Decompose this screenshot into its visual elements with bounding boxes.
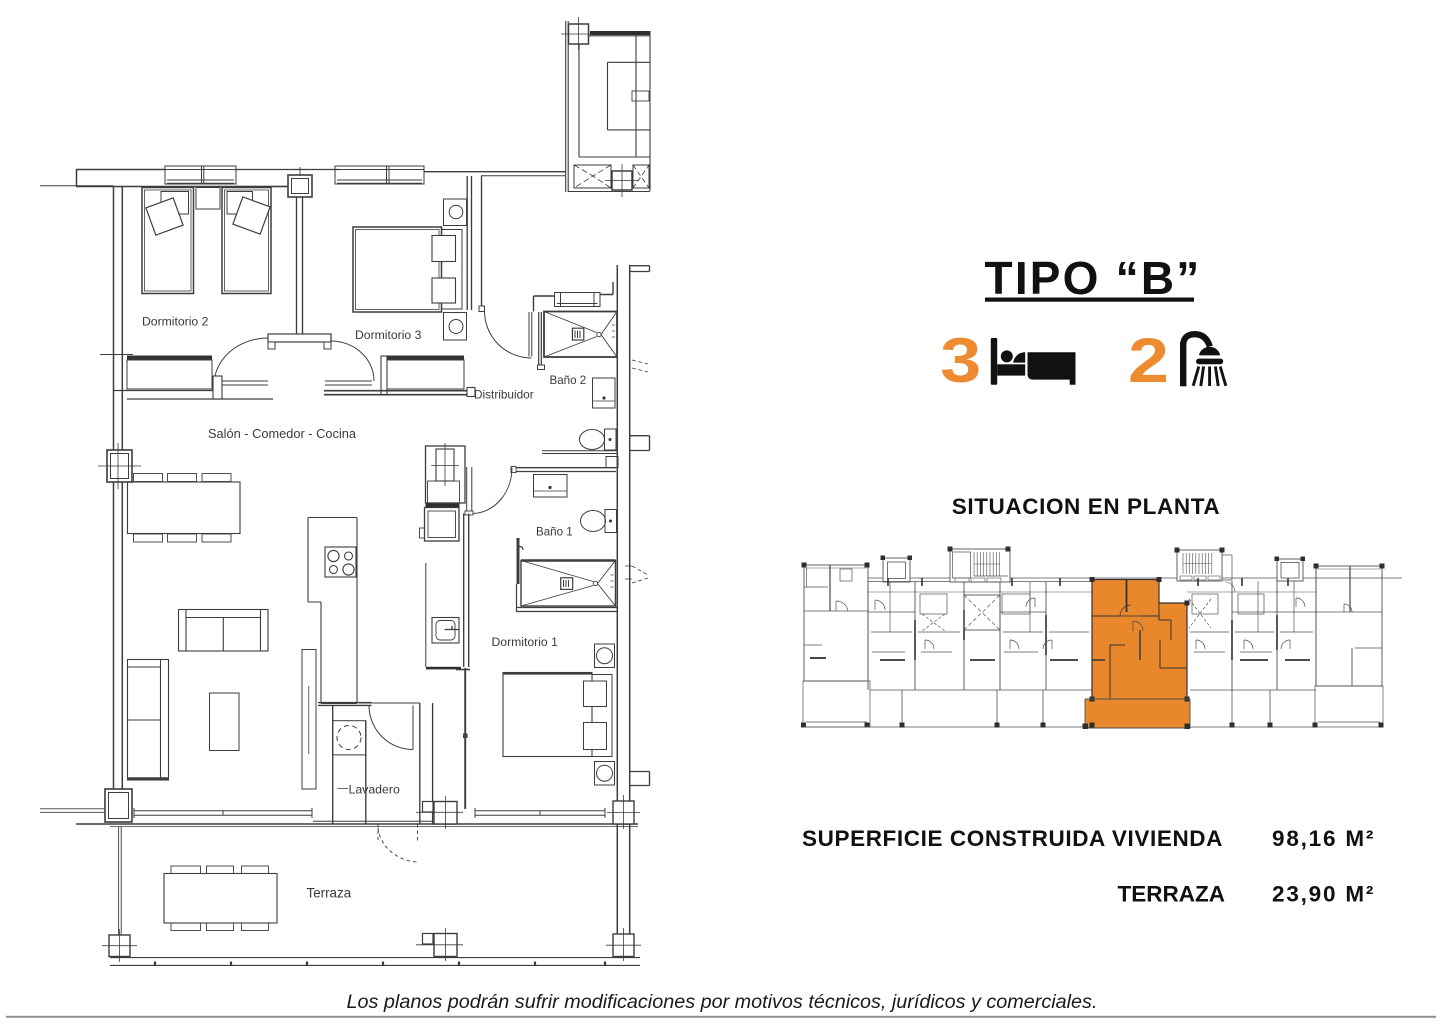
svg-text:Salón - Comedor - Cocina: Salón - Comedor - Cocina (208, 426, 357, 441)
svg-text:Baño 1: Baño 1 (536, 526, 573, 539)
svg-text:Los planos podrán sufrir modif: Los planos podrán sufrir modificaciones … (347, 991, 1098, 1013)
svg-text:3: 3 (940, 325, 981, 396)
svg-text:SUPERFICIE CONSTRUIDA VIVIENDA: SUPERFICIE CONSTRUIDA VIVIENDA (802, 826, 1223, 851)
svg-text:TERRAZA: TERRAZA (1118, 882, 1226, 907)
svg-text:Dormitorio 1: Dormitorio 1 (492, 635, 559, 649)
svg-text:Distribuidor: Distribuidor (474, 388, 534, 402)
svg-text:23,90 M²: 23,90 M² (1272, 882, 1375, 907)
svg-text:Dormitorio 2: Dormitorio 2 (142, 315, 209, 329)
svg-text:TIPO “B”: TIPO “B” (985, 252, 1202, 304)
svg-text:Baño 2: Baño 2 (550, 374, 587, 387)
svg-text:2: 2 (1128, 325, 1169, 396)
svg-text:Terraza: Terraza (307, 886, 352, 901)
svg-text:Dormitorio 3: Dormitorio 3 (355, 328, 422, 342)
svg-text:98,16 M²: 98,16 M² (1272, 826, 1375, 851)
svg-text:Lavadero: Lavadero (349, 783, 400, 797)
svg-text:SITUACION EN PLANTA: SITUACION EN PLANTA (952, 494, 1220, 519)
